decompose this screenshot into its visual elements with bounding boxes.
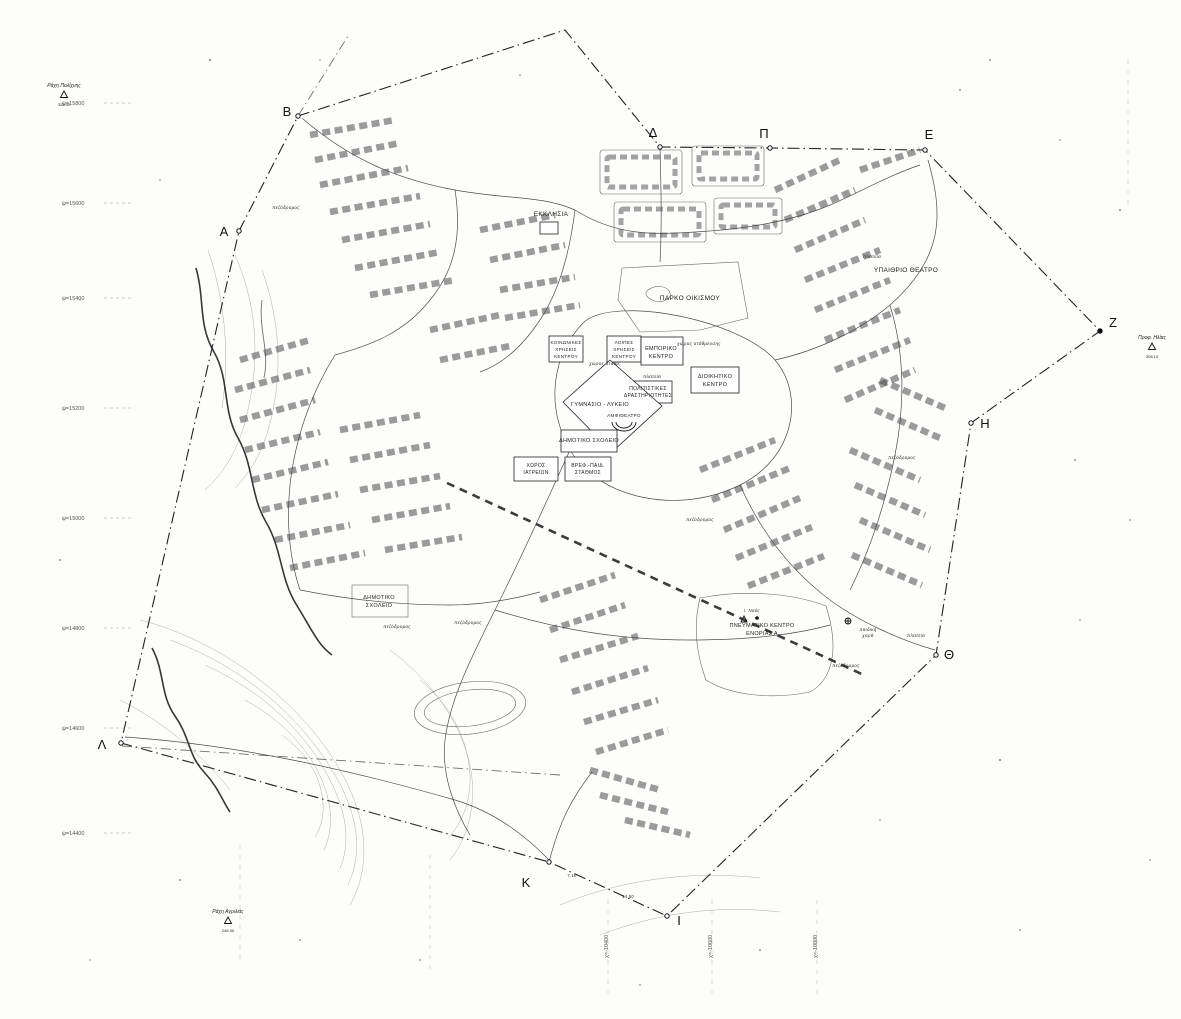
scanned-plan-sheet: ψ=15800ψ=15600ψ=15400ψ=15200ψ=15000ψ=148… — [0, 0, 1181, 1019]
boundary-vertex-label: E — [925, 127, 934, 142]
trig-points: Ράχη Πολίχνης322.40Προφ. Ηλίας308.10Ράχη… — [47, 83, 1166, 933]
grid-label-left: ψ=14800 — [62, 626, 84, 632]
stream-lines — [152, 268, 332, 812]
trig-point-elevation: 246.30 — [222, 928, 235, 933]
boundary-vertex-label: Λ — [98, 737, 107, 752]
map-label: ΑΜΦΙΘΕΑΤΡΟ — [607, 413, 641, 418]
map-label: χώρος στάθμ. — [588, 360, 621, 366]
boundary-vertex-marker — [923, 148, 927, 152]
boundary-vertex-marker — [969, 421, 973, 425]
map-label: ΓΥΜΝΑΣΙΟ - ΛΥΚΕΙΟ — [571, 402, 629, 408]
grid-label-left: ψ=15200 — [62, 406, 84, 412]
map-label: ΕΜΠΟΡΙΚΟ — [645, 346, 677, 352]
chapel-dot — [755, 616, 759, 620]
map-label: ΚΟΙΝΩΝΙΚΕΣ — [550, 340, 581, 345]
trig-point-icon — [1149, 343, 1156, 350]
map-label: χαρά — [861, 633, 874, 638]
map-label: ΛΟΙΠΕΣ — [615, 340, 634, 345]
settlement-plan-map: ψ=15800ψ=15600ψ=15400ψ=15200ψ=15000ψ=148… — [0, 0, 1181, 1019]
boundary-vertex-label: Z — [1109, 315, 1117, 330]
grid-label-left: ψ=15600 — [62, 201, 84, 207]
map-label: ΕΝΟΡΙΑΣ Α — [746, 631, 778, 637]
boundary-vertex-marker — [547, 860, 551, 864]
map-label: χώρος στάθμευσης — [676, 340, 721, 346]
map-label: ΣΤΑΘΜΟΣ — [575, 470, 601, 476]
map-label: πεζόδρομος — [454, 619, 482, 626]
map-label: πλατεία — [643, 374, 661, 380]
boundary-vertex-letters: ABΔΠEZHΘIKΛ — [98, 104, 1117, 928]
trig-point-elevation: 322.40 — [58, 102, 71, 107]
map-label: 7.10 — [567, 873, 577, 878]
church-building — [540, 222, 558, 234]
map-label: πεζόδρομος — [888, 454, 916, 461]
road-network — [125, 118, 937, 862]
trig-point-name: Ράχη Πολίχνης — [47, 83, 81, 89]
map-label: ΧΩΡΟΣ — [527, 463, 546, 469]
trig-point-name: Προφ. Ηλίας — [1138, 335, 1166, 341]
boundary-vertex-label: K — [522, 875, 531, 890]
map-label: πεζόδρομος — [686, 516, 714, 523]
grid-label-bottom: χ=-10400 — [604, 935, 610, 958]
map-label: πεζόδρομος — [272, 204, 300, 211]
grid-label-left: ψ=15400 — [62, 296, 84, 302]
boundary-vertex-marker — [237, 229, 241, 233]
boundary-vertex-marker — [296, 114, 300, 118]
grid-label-bottom: χ=-10800 — [813, 935, 819, 958]
boundary-vertex-marker — [768, 146, 772, 150]
map-label: ΣΧΟΛΕΙΟ — [366, 603, 393, 609]
athletics-track — [411, 675, 529, 740]
grid-guides — [240, 60, 1128, 1000]
boundary-vertex-marker — [934, 653, 938, 657]
map-label: ΚΕΝΤΡΟΥ — [554, 354, 578, 359]
map-label: 14.50 — [622, 894, 634, 899]
map-label: ΠΑΡΚΟ ΟΙΚΙΣΜΟΥ — [660, 295, 721, 302]
map-label: ΚΕΝΤΡΟ — [649, 354, 674, 360]
boundary-vertex-label: I — [677, 913, 681, 928]
map-label: ΕΚΚΛΗΣΙΑ — [534, 211, 569, 218]
map-label: ΔΙΟΙΚΗΤΙΚΟ — [698, 374, 733, 380]
grid-label-left: ψ=14400 — [62, 831, 84, 837]
trig-point-icon — [61, 91, 68, 98]
boundary-vertex-label: B — [283, 104, 292, 119]
map-label: πεζόδρομος — [383, 623, 411, 630]
map-label: ΥΠΑΙΘΡΙΟ ΘΕΑΤΡΟ — [874, 267, 938, 274]
boundary-vertex-label: A — [220, 224, 229, 239]
boundary-vertex-marker — [658, 145, 662, 149]
grid-label-left: ψ=15000 — [62, 516, 84, 522]
map-label: παιδική — [859, 626, 876, 632]
boundary-vertex-marker — [1098, 329, 1102, 333]
map-label: ΚΕΝΤΡΟΥ — [612, 354, 636, 359]
map-label: ΠΟΛΙΤΙΣΤΙΚΕΣ — [629, 386, 666, 392]
trig-point-name: Ράχη Αγριλιάς — [212, 909, 244, 915]
map-label: Ι. Ναός — [744, 608, 761, 613]
boundary-vertex-label: Θ — [944, 647, 954, 662]
map-label: πλατεία — [907, 633, 925, 639]
grid-labels-left: ψ=15800ψ=15600ψ=15400ψ=15200ψ=15000ψ=148… — [62, 101, 132, 837]
map-label: ΔΡΑΣΤΗΡΙΟΤΗΤΕΣ — [624, 393, 672, 399]
boundary-vertex-label: Π — [759, 126, 768, 141]
map-label: ΔΗΜΟΤΙΚΟ — [363, 595, 395, 601]
boundary-vertex-label: Δ — [649, 125, 658, 140]
boundary-vertex-marker — [119, 741, 123, 745]
map-label: πεζόδρομος — [832, 662, 860, 669]
grid-labels-bottom: χ=-10400χ=-10600χ=-10800 — [604, 935, 819, 958]
superblocks — [600, 146, 782, 242]
map-label: ΒΡΕΦ.-ΠΑΙΔ. — [571, 463, 604, 469]
map-label: ΠΝΕΥΜΑΤΙΚΟ ΚΕΝΤΡΟ — [729, 623, 794, 629]
boundary-vertex-marker — [665, 914, 669, 918]
trig-point-elevation: 308.10 — [1146, 354, 1159, 359]
map-label: ΧΡΗΣΕΙΣ — [555, 347, 577, 352]
scan-noise — [59, 59, 1151, 986]
grid-label-left: ψ=14600 — [62, 726, 84, 732]
grid-label-bottom: χ=-10600 — [708, 935, 714, 958]
map-label: πλατεία — [863, 254, 881, 260]
map-label: ΧΡΗΣΕΙΣ — [613, 347, 635, 352]
trig-point-icon — [225, 917, 232, 924]
boundary-vertex-label: H — [980, 416, 989, 431]
map-label: ΚΕΝΤΡΟ — [703, 382, 728, 388]
map-label: ΙΑΤΡΕΙΩΝ — [523, 470, 548, 476]
map-label: ΔΗΜΟΤΙΚΟ ΣΧΟΛΕΙΟ — [559, 438, 619, 444]
